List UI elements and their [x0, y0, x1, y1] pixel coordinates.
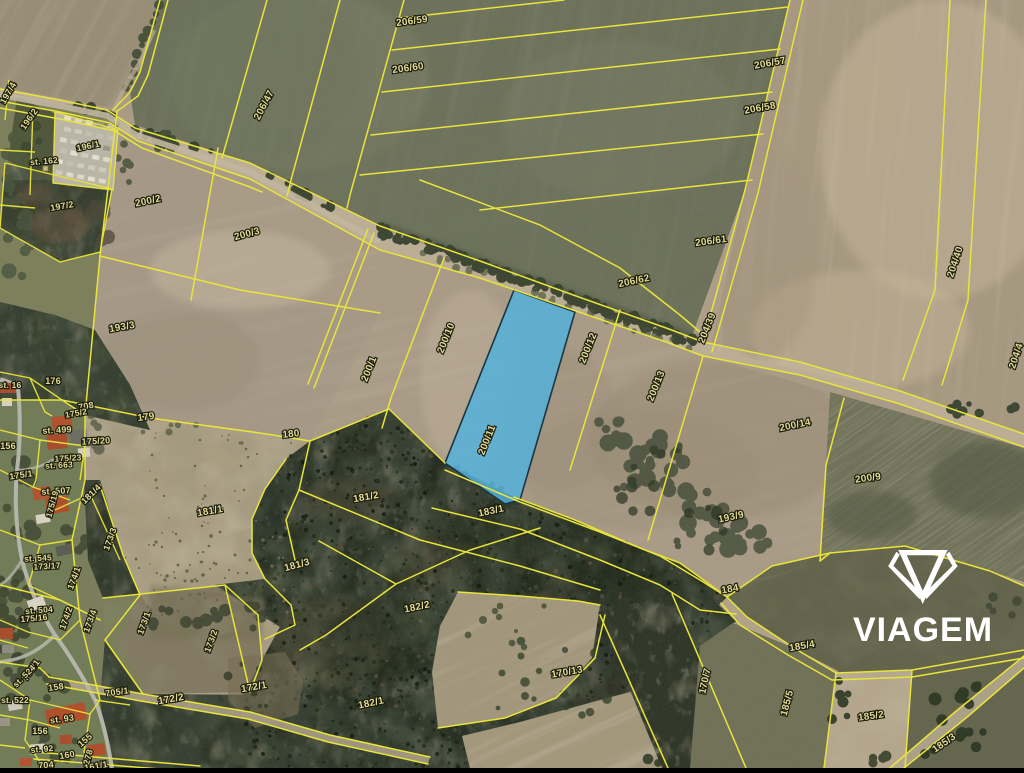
svg-text:704: 704	[38, 759, 54, 768]
svg-text:st. 92: st. 92	[30, 743, 54, 755]
svg-text:VIAGEM: VIAGEM	[853, 611, 993, 649]
svg-text:st. 499: st. 499	[42, 424, 72, 436]
svg-text:156: 156	[32, 726, 48, 736]
svg-text:173/17: 173/17	[33, 560, 61, 571]
svg-text:180: 180	[282, 428, 301, 441]
svg-text:175/20: 175/20	[81, 435, 110, 446]
svg-text:st. 522: st. 522	[1, 695, 29, 705]
svg-text:176: 176	[45, 376, 61, 386]
svg-text:156: 156	[0, 441, 16, 451]
svg-text:st. 663: st. 663	[45, 459, 73, 470]
svg-text:st. 16: st. 16	[0, 380, 22, 390]
